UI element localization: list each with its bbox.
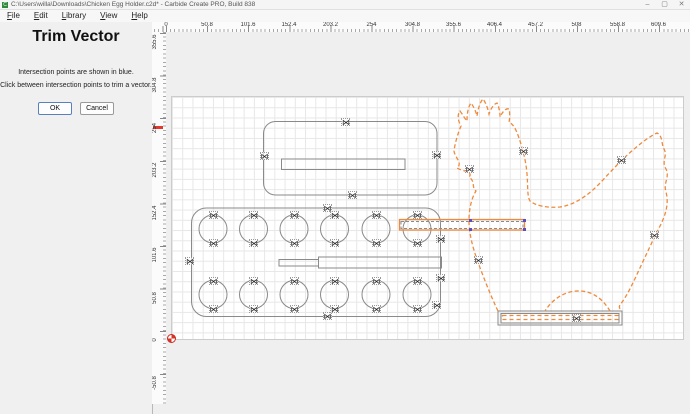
cancel-button[interactable]: Cancel [80,102,114,115]
menu-item-file[interactable]: File [0,10,27,22]
menu-item-view[interactable]: View [93,10,124,22]
panel-title: Trim Vector [0,28,152,46]
node-marker-icon: ⋈ [436,235,445,243]
intersection-point[interactable] [469,228,472,231]
node-marker-icon: ⋈ [330,305,339,313]
node-marker-icon: ⋈ [413,239,422,247]
ruler-label-y: 304.8 [152,72,160,98]
ruler-label-x: 355.6 [442,22,466,28]
node-marker-icon: ⋈ [330,211,339,219]
carbide-create-window: C C:\Users\willa\Downloads\Chicken Egg H… [0,0,690,414]
window-title: C:\Users\willa\Downloads\Chicken Egg Hol… [11,1,639,8]
node-marker-icon: ⋈ [650,231,659,239]
vector-egg-tray-outline[interactable] [192,208,441,317]
ruler-label-x: 406.4 [483,22,507,28]
ruler-label-x: 101.6 [236,22,260,28]
design-canvas[interactable]: ⋈⋈⋈⋈⋈⋈⋈⋈⋈⋈⋈⋈⋈⋈⋈⋈⋈⋈⋈⋈⋈⋈⋈⋈⋈⋈⋈⋈⋈⋈⋈⋈⋈⋈⋈⋈⋈⋈⋈⋈ [166,32,690,414]
vector-mid-slot-left[interactable] [279,260,319,267]
app-icon: C [2,2,8,8]
menu-item-help[interactable]: Help [124,10,154,22]
ruler-vertical: 355.6304.8254203.2152.4101.650.80-50.8 [152,32,167,404]
node-marker-icon: ⋈ [260,152,269,160]
instruction-line-2: Click between intersection points to tri… [0,81,152,90]
vector-upper-slot-ghost[interactable] [401,222,523,229]
ruler-label-y: -50.8 [152,370,160,396]
ruler-label-x: 50.8 [195,22,219,28]
node-marker-icon: ⋈ [290,277,299,285]
node-marker-icon: ⋈ [249,305,258,313]
node-marker-icon: ⋈ [413,305,422,313]
ruler-label-x: 0 [154,22,178,28]
ruler-label-y: 203.2 [152,157,160,183]
node-marker-icon: ⋈ [372,305,381,313]
node-marker-icon: ⋈ [432,301,441,309]
ruler-label-y: 50.8 [152,285,160,311]
vector-top-shelf-outline[interactable] [264,122,438,196]
node-marker-icon: ⋈ [413,277,422,285]
node-marker-icon: ⋈ [572,314,581,322]
ruler-label-y: 152.4 [152,200,160,226]
node-marker-icon: ⋈ [209,277,218,285]
ok-button[interactable]: OK [38,102,72,115]
node-marker-icon: ⋈ [465,165,474,173]
node-marker-icon: ⋈ [348,191,357,199]
ruler-label-y: 101.6 [152,242,160,268]
node-marker-icon: ⋈ [209,305,218,313]
ruler-label-y: 254 [152,115,160,141]
node-marker-icon: ⋈ [432,151,441,159]
ruler-label-x: 558.8 [606,22,630,28]
node-marker-icon: ⋈ [290,211,299,219]
vector-top-shelf-slot[interactable] [282,159,406,170]
vector-mid-slot-right[interactable] [319,257,442,268]
node-marker-icon: ⋈ [249,211,258,219]
ruler-label-x: 457.2 [524,22,548,28]
vector-drawing [166,32,690,414]
node-marker-icon: ⋈ [249,239,258,247]
intersection-point[interactable] [469,219,472,222]
node-marker-icon: ⋈ [372,211,381,219]
close-button[interactable]: ✕ [673,0,690,9]
ruler-label-y: 0 [152,327,160,353]
node-marker-icon: ⋈ [249,277,258,285]
origin-marker [167,334,176,343]
menu-item-library[interactable]: Library [55,10,93,22]
node-marker-icon: ⋈ [474,256,483,264]
title-bar: C C:\Users\willa\Downloads\Chicken Egg H… [0,0,690,10]
menu-item-edit[interactable]: Edit [27,10,55,22]
ruler-label-x: 203.2 [319,22,343,28]
node-marker-icon: ⋈ [436,274,445,282]
node-marker-icon: ⋈ [290,305,299,313]
maximize-button[interactable]: ▢ [656,0,673,9]
node-marker-icon: ⋈ [341,118,350,126]
node-marker-icon: ⋈ [413,211,422,219]
node-marker-icon: ⋈ [617,156,626,164]
node-marker-icon: ⋈ [330,277,339,285]
ruler-label-x: 304.8 [401,22,425,28]
node-marker-icon: ⋈ [185,257,194,265]
instruction-line-1: Intersection points are shown in blue. [0,68,152,77]
intersection-point[interactable] [523,219,526,222]
minimize-button[interactable]: – [639,0,656,9]
ruler-label-x: 152.4 [277,22,301,28]
vector-base-slot-selected[interactable] [503,316,619,320]
ruler-label-y: 355.6 [152,32,160,55]
intersection-point[interactable] [523,228,526,231]
node-marker-icon: ⋈ [372,277,381,285]
node-marker-icon: ⋈ [519,147,528,155]
trim-vector-panel: Trim Vector Intersection points are show… [0,22,153,414]
node-marker-icon: ⋈ [330,239,339,247]
ruler-label-x: 609.6 [647,22,671,28]
vector-chicken-outline[interactable] [454,99,667,311]
node-marker-icon: ⋈ [209,211,218,219]
node-marker-icon: ⋈ [290,239,299,247]
ruler-label-x: 254 [360,22,384,28]
node-marker-icon: ⋈ [372,239,381,247]
node-marker-icon: ⋈ [209,239,218,247]
ruler-label-x: 508 [565,22,589,28]
